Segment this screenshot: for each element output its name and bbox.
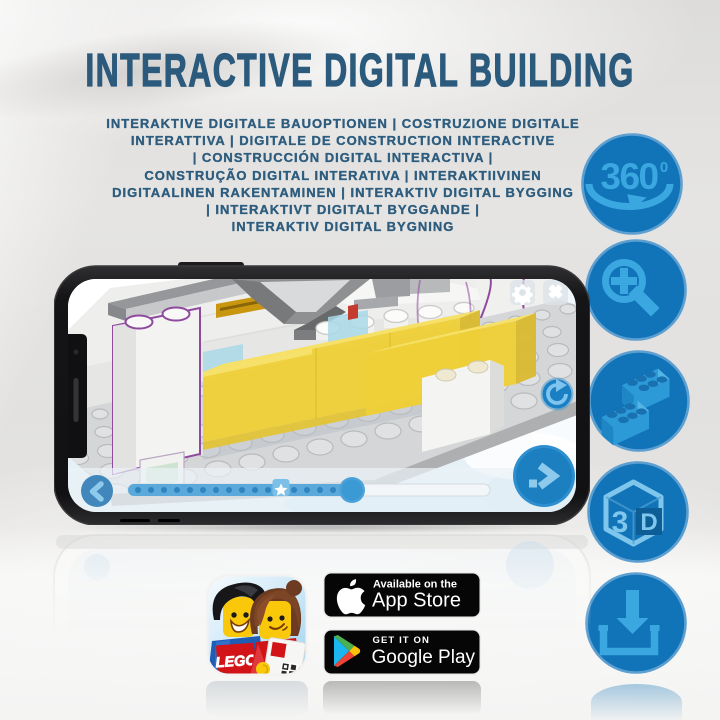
svg-text:360: 360 xyxy=(600,156,658,197)
svg-text:GET IT ON: GET IT ON xyxy=(373,635,430,646)
svg-text:D: D xyxy=(640,509,657,536)
svg-text:3: 3 xyxy=(612,506,629,539)
svg-text:App Store: App Store xyxy=(372,590,461,612)
svg-text:0: 0 xyxy=(660,159,668,176)
svg-text:Google Play: Google Play xyxy=(372,647,476,668)
